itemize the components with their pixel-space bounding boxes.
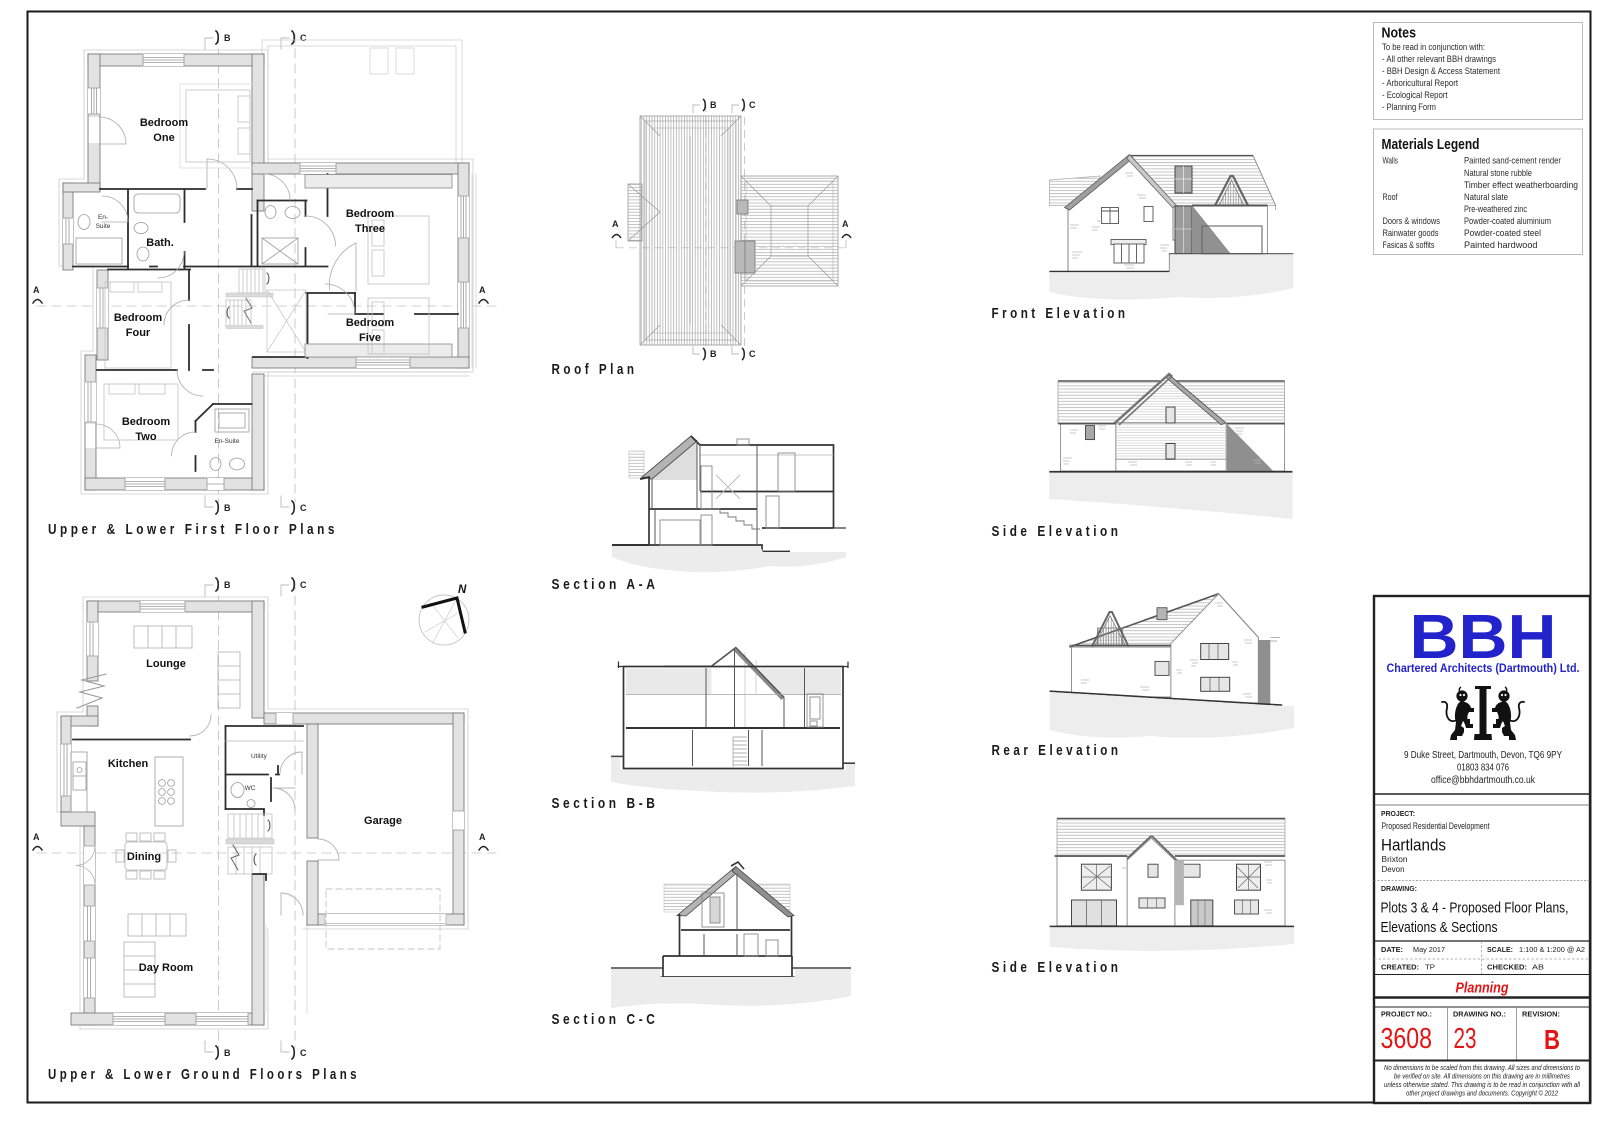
svg-text:REVISION:: REVISION:: [1522, 1010, 1560, 1019]
svg-text:01803 834 076: 01803 834 076: [1457, 763, 1509, 774]
svg-text:Garage: Garage: [364, 815, 402, 827]
svg-text:Side Elevation: Side Elevation: [992, 523, 1122, 540]
svg-text:May 2017: May 2017: [1413, 945, 1445, 954]
svg-text:- Planning Form: - Planning Form: [1382, 102, 1436, 113]
svg-text:Upper & Lower First Floor Plan: Upper & Lower First Floor Plans: [48, 521, 338, 538]
svg-text:CHECKED:: CHECKED:: [1487, 963, 1527, 972]
svg-text:- BBH Design & Access Statemen: - BBH Design & Access Statement: [1382, 66, 1500, 77]
svg-text:Doors & windows: Doors & windows: [1383, 216, 1441, 227]
svg-text:Four: Four: [126, 327, 151, 339]
svg-text:Plots 3 & 4 - Proposed Floor P: Plots 3 & 4 - Proposed Floor Plans,: [1381, 900, 1569, 917]
svg-text:other project drawings and doc: other project drawings and documents. Co…: [1406, 1089, 1558, 1098]
svg-text:Bedroom: Bedroom: [346, 208, 395, 220]
svg-text:A: A: [479, 832, 486, 842]
svg-text:En-: En-: [98, 214, 108, 221]
svg-text:Bedroom: Bedroom: [346, 317, 395, 329]
svg-text:Bath.: Bath.: [146, 237, 174, 249]
svg-text:DRAWING NO.:: DRAWING NO.:: [1453, 1010, 1506, 1019]
svg-text:Brixton: Brixton: [1382, 854, 1408, 864]
svg-text:Walls: Walls: [1383, 156, 1399, 167]
svg-text:Painted sand-cement render: Painted sand-cement render: [1464, 156, 1561, 167]
svg-text:DRAWING:: DRAWING:: [1381, 884, 1417, 893]
svg-text:C: C: [300, 580, 307, 590]
svg-text:- Ecological Report: - Ecological Report: [1382, 90, 1448, 101]
svg-text:En-Suite: En-Suite: [215, 438, 240, 445]
svg-text:C: C: [300, 503, 307, 513]
svg-text:Side Elevation: Side Elevation: [992, 959, 1122, 976]
svg-text:A: A: [612, 219, 619, 229]
svg-text:PROJECT:: PROJECT:: [1381, 809, 1415, 818]
svg-text:Utility: Utility: [251, 753, 268, 760]
svg-text:Section C-C: Section C-C: [552, 1011, 659, 1028]
svg-text:Natural slate: Natural slate: [1464, 192, 1508, 203]
svg-text:Bedroom: Bedroom: [140, 117, 189, 129]
svg-text:A: A: [479, 285, 486, 295]
svg-text:Notes: Notes: [1382, 26, 1417, 42]
svg-text:Bedroom: Bedroom: [114, 312, 163, 324]
svg-text:Pre-weathered zinc: Pre-weathered zinc: [1464, 204, 1527, 215]
svg-text:Suite: Suite: [96, 223, 111, 230]
svg-text:Section A-A: Section A-A: [552, 576, 659, 593]
svg-text:AB: AB: [1532, 963, 1544, 972]
svg-text:Rear Elevation: Rear Elevation: [992, 742, 1122, 759]
svg-text:Timber effect weatherboarding: Timber effect weatherboarding: [1464, 180, 1578, 191]
svg-text:Dining: Dining: [127, 851, 161, 863]
svg-text:SCALE:: SCALE:: [1487, 945, 1513, 954]
svg-text:Devon: Devon: [1382, 864, 1405, 874]
svg-text:B: B: [1544, 1024, 1560, 1055]
svg-text:Five: Five: [359, 332, 381, 344]
svg-text:9 Duke Street, Dartmouth, Devo: 9 Duke Street, Dartmouth, Devon, TQ6 9PY: [1404, 750, 1562, 761]
svg-text:Two: Two: [135, 431, 156, 443]
svg-text:A: A: [33, 285, 40, 295]
svg-text:1:100 & 1:200 @ A2: 1:100 & 1:200 @ A2: [1519, 945, 1585, 954]
svg-text:Natural stone rubble: Natural stone rubble: [1464, 168, 1532, 179]
svg-text:Fasicas & soffits: Fasicas & soffits: [1383, 240, 1435, 251]
svg-text:Hartlands: Hartlands: [1381, 837, 1446, 855]
svg-text:Materials Legend: Materials Legend: [1382, 137, 1480, 153]
svg-text:To be read in conjunction with: To be read in conjunction with:: [1382, 42, 1485, 53]
svg-text:Elevations & Sections: Elevations & Sections: [1381, 919, 1498, 936]
svg-text:Three: Three: [355, 223, 385, 235]
svg-text:B: B: [224, 503, 231, 513]
svg-text:A: A: [842, 219, 849, 229]
svg-text:23: 23: [1454, 1023, 1477, 1055]
svg-text:B: B: [710, 100, 717, 110]
svg-text:Lounge: Lounge: [146, 658, 186, 670]
svg-text:Roof Plan: Roof Plan: [552, 361, 638, 378]
svg-text:PROJECT NO.:: PROJECT NO.:: [1381, 1010, 1432, 1019]
svg-text:Upper & Lower Ground Floors Pl: Upper & Lower Ground Floors Plans: [48, 1066, 360, 1083]
svg-text:C: C: [300, 1048, 307, 1058]
svg-text:A: A: [33, 832, 40, 842]
svg-text:Powder-coated aluminium: Powder-coated aluminium: [1464, 216, 1551, 227]
svg-text:TP: TP: [1425, 963, 1435, 972]
svg-text:Day Room: Day Room: [139, 962, 194, 974]
svg-text:B: B: [710, 349, 717, 359]
svg-text:3608: 3608: [1381, 1023, 1433, 1055]
svg-text:C: C: [749, 349, 756, 359]
svg-text:B: B: [224, 580, 231, 590]
svg-text:Powder-coated steel: Powder-coated steel: [1464, 228, 1541, 239]
svg-text:N: N: [458, 584, 467, 596]
svg-text:C: C: [300, 33, 307, 43]
svg-text:Rainwater goods: Rainwater goods: [1383, 228, 1439, 239]
svg-text:Bedroom: Bedroom: [122, 416, 171, 428]
svg-text:Front Elevation: Front Elevation: [992, 305, 1129, 322]
svg-text:Chartered Architects (Dartmout: Chartered Architects (Dartmouth) Ltd.: [1387, 661, 1580, 675]
svg-text:Painted hardwood: Painted hardwood: [1464, 240, 1538, 251]
svg-text:- Arboricultural Report: - Arboricultural Report: [1382, 78, 1458, 89]
svg-text:Proposed Residential Developme: Proposed Residential Development: [1382, 821, 1490, 832]
svg-text:CREATED:: CREATED:: [1381, 963, 1419, 972]
svg-text:Kitchen: Kitchen: [108, 758, 149, 770]
svg-text:B: B: [224, 33, 231, 43]
svg-text:Roof: Roof: [1383, 192, 1398, 203]
svg-text:Planning: Planning: [1456, 981, 1509, 997]
svg-text:One: One: [153, 132, 174, 144]
svg-text:- All other relevant BBH drawi: - All other relevant BBH drawings: [1382, 54, 1496, 65]
svg-text:B: B: [224, 1048, 231, 1058]
svg-text:WC: WC: [245, 785, 256, 792]
svg-text:DATE:: DATE:: [1381, 945, 1403, 954]
svg-text:Section B-B: Section B-B: [552, 795, 659, 812]
svg-text:C: C: [749, 100, 756, 110]
svg-text:office@bbhdartmouth.co.uk: office@bbhdartmouth.co.uk: [1431, 775, 1536, 786]
